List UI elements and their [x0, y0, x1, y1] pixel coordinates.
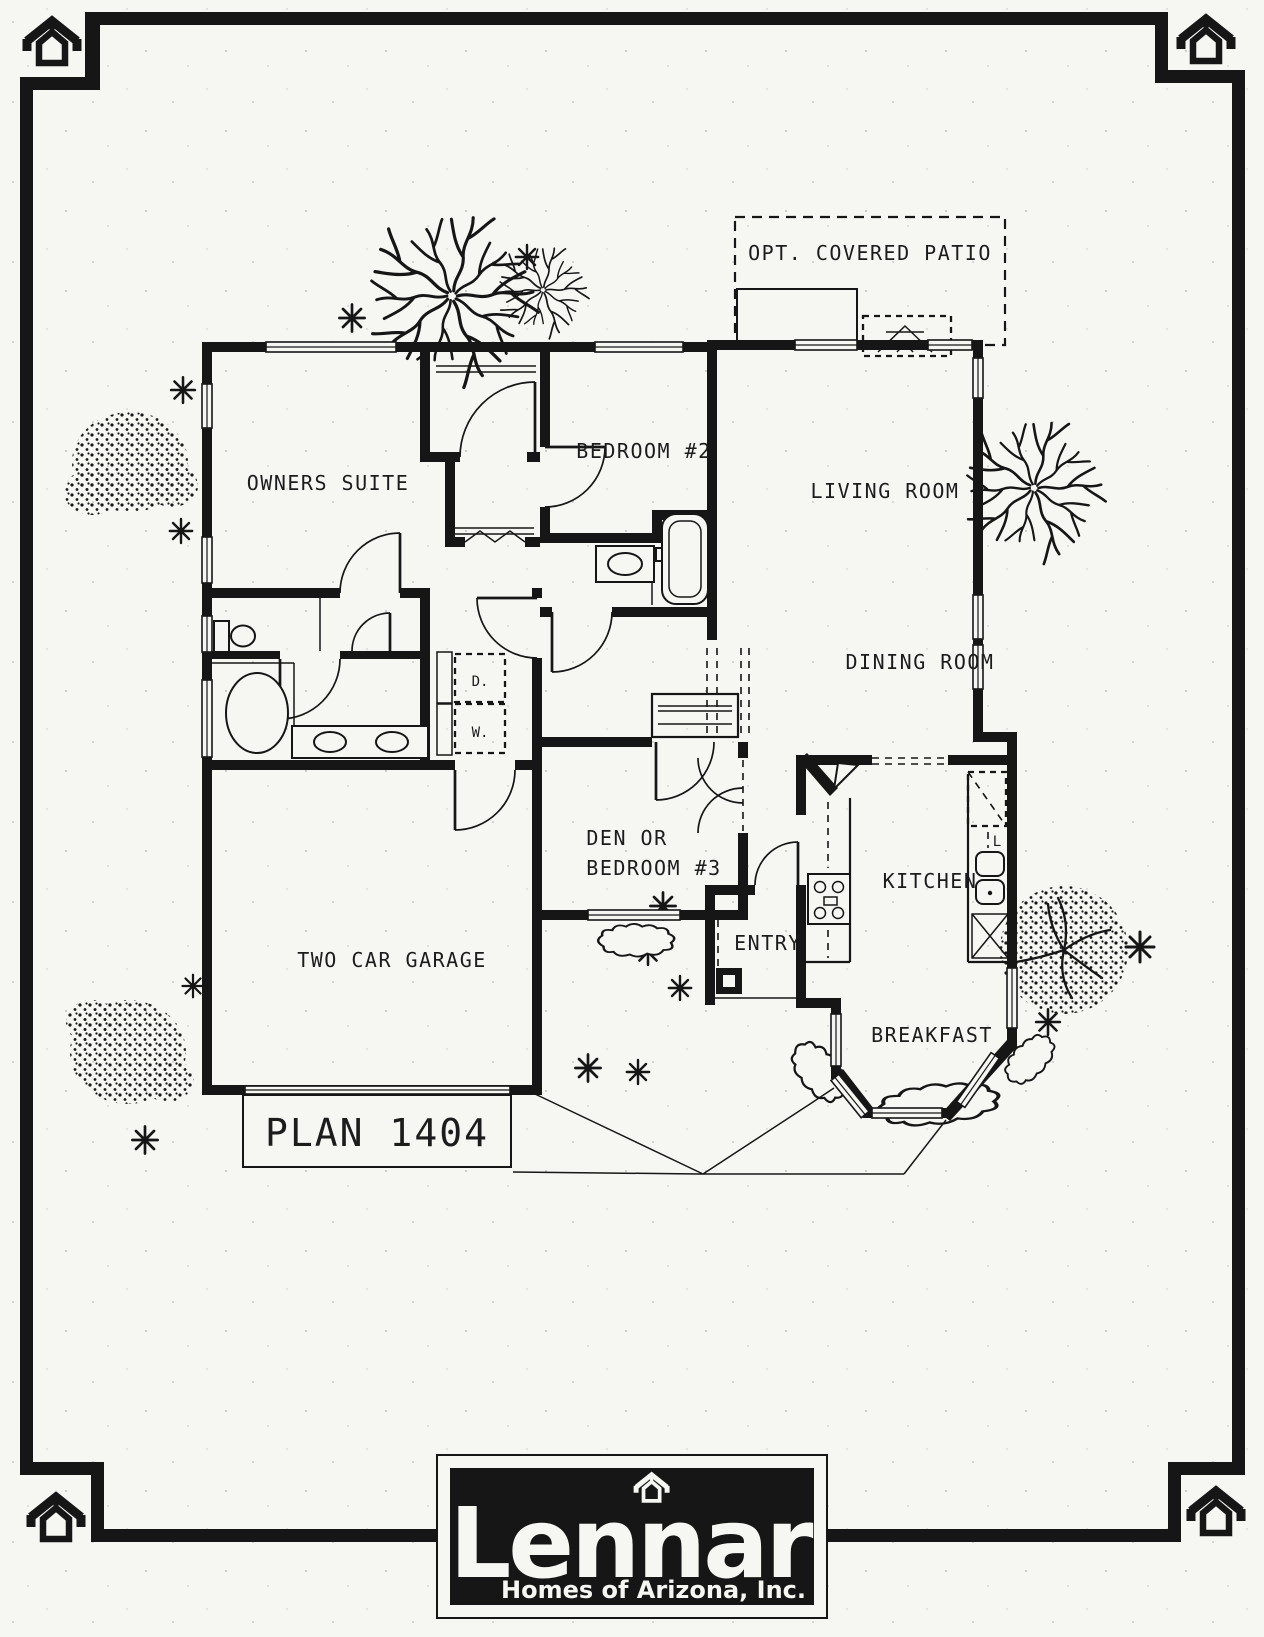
window [973, 358, 983, 398]
window [266, 342, 396, 352]
paper-texture [0, 0, 1264, 1637]
room-label-entry: ENTRY [734, 931, 802, 955]
builder-logo: Lennar Homes of Arizona, Inc. [437, 1455, 827, 1618]
vanity-sink [596, 546, 654, 582]
plant-star-icon [132, 1127, 157, 1154]
window [202, 537, 212, 583]
room-label-den-line-2: BEDROOM #3 [586, 856, 721, 880]
window [595, 342, 683, 352]
plant-star-icon [516, 245, 538, 269]
plan-number-label: PLAN 1404 [265, 1111, 489, 1155]
window [202, 680, 212, 757]
stove-icon [808, 874, 850, 924]
sliding-door [795, 340, 857, 350]
plan-number-box: PLAN 1404 [243, 1095, 511, 1167]
entry-column [716, 968, 742, 994]
plant-star-icon [627, 1060, 649, 1084]
window [588, 910, 680, 920]
vanity-sinks [292, 726, 428, 758]
room-label-owners-suite: OWNERS SUITE [247, 471, 410, 495]
patio-label: OPT. COVERED PATIO [748, 241, 992, 265]
window [928, 340, 972, 350]
room-label-garage: TWO CAR GARAGE [297, 948, 487, 972]
plant-star-icon [171, 377, 195, 403]
window [831, 1014, 841, 1066]
plant-star-icon [339, 305, 364, 332]
window [202, 616, 212, 652]
room-label-dining-room: DINING ROOM [846, 650, 995, 674]
washer-label: W. [472, 725, 489, 741]
logo-tagline: Homes of Arizona, Inc. [501, 1576, 806, 1604]
plant-star-icon [183, 975, 204, 998]
room-label-den-line-1: DEN OR [586, 826, 667, 850]
plant-star-icon [170, 519, 192, 543]
room-label-bedroom-2: BEDROOM #2 [576, 439, 711, 463]
window [1007, 968, 1017, 1028]
room-label-kitchen: KITCHEN [883, 869, 978, 893]
plant-star-icon [575, 1055, 600, 1082]
pantry-mark-label: L [993, 834, 1001, 850]
dryer-label: D. [472, 674, 489, 690]
floor-plan-drawing: OPT. COVERED PATIO [0, 0, 1264, 1637]
room-label-living-room: LIVING ROOM [811, 479, 960, 503]
floor-plan-sheet: OPT. COVERED PATIO [0, 0, 1264, 1637]
garage-door [245, 1086, 510, 1094]
plant-star-icon [1126, 932, 1154, 962]
window [202, 384, 212, 428]
planter [737, 289, 857, 347]
bathtub-icon [662, 514, 708, 604]
plant-star-icon [1036, 1009, 1060, 1035]
room-label-breakfast: BREAKFAST [871, 1023, 993, 1047]
leafy-tree-icon [1000, 886, 1128, 1014]
plant-star-icon [669, 976, 691, 1000]
window [973, 595, 983, 639]
window [872, 1108, 942, 1118]
